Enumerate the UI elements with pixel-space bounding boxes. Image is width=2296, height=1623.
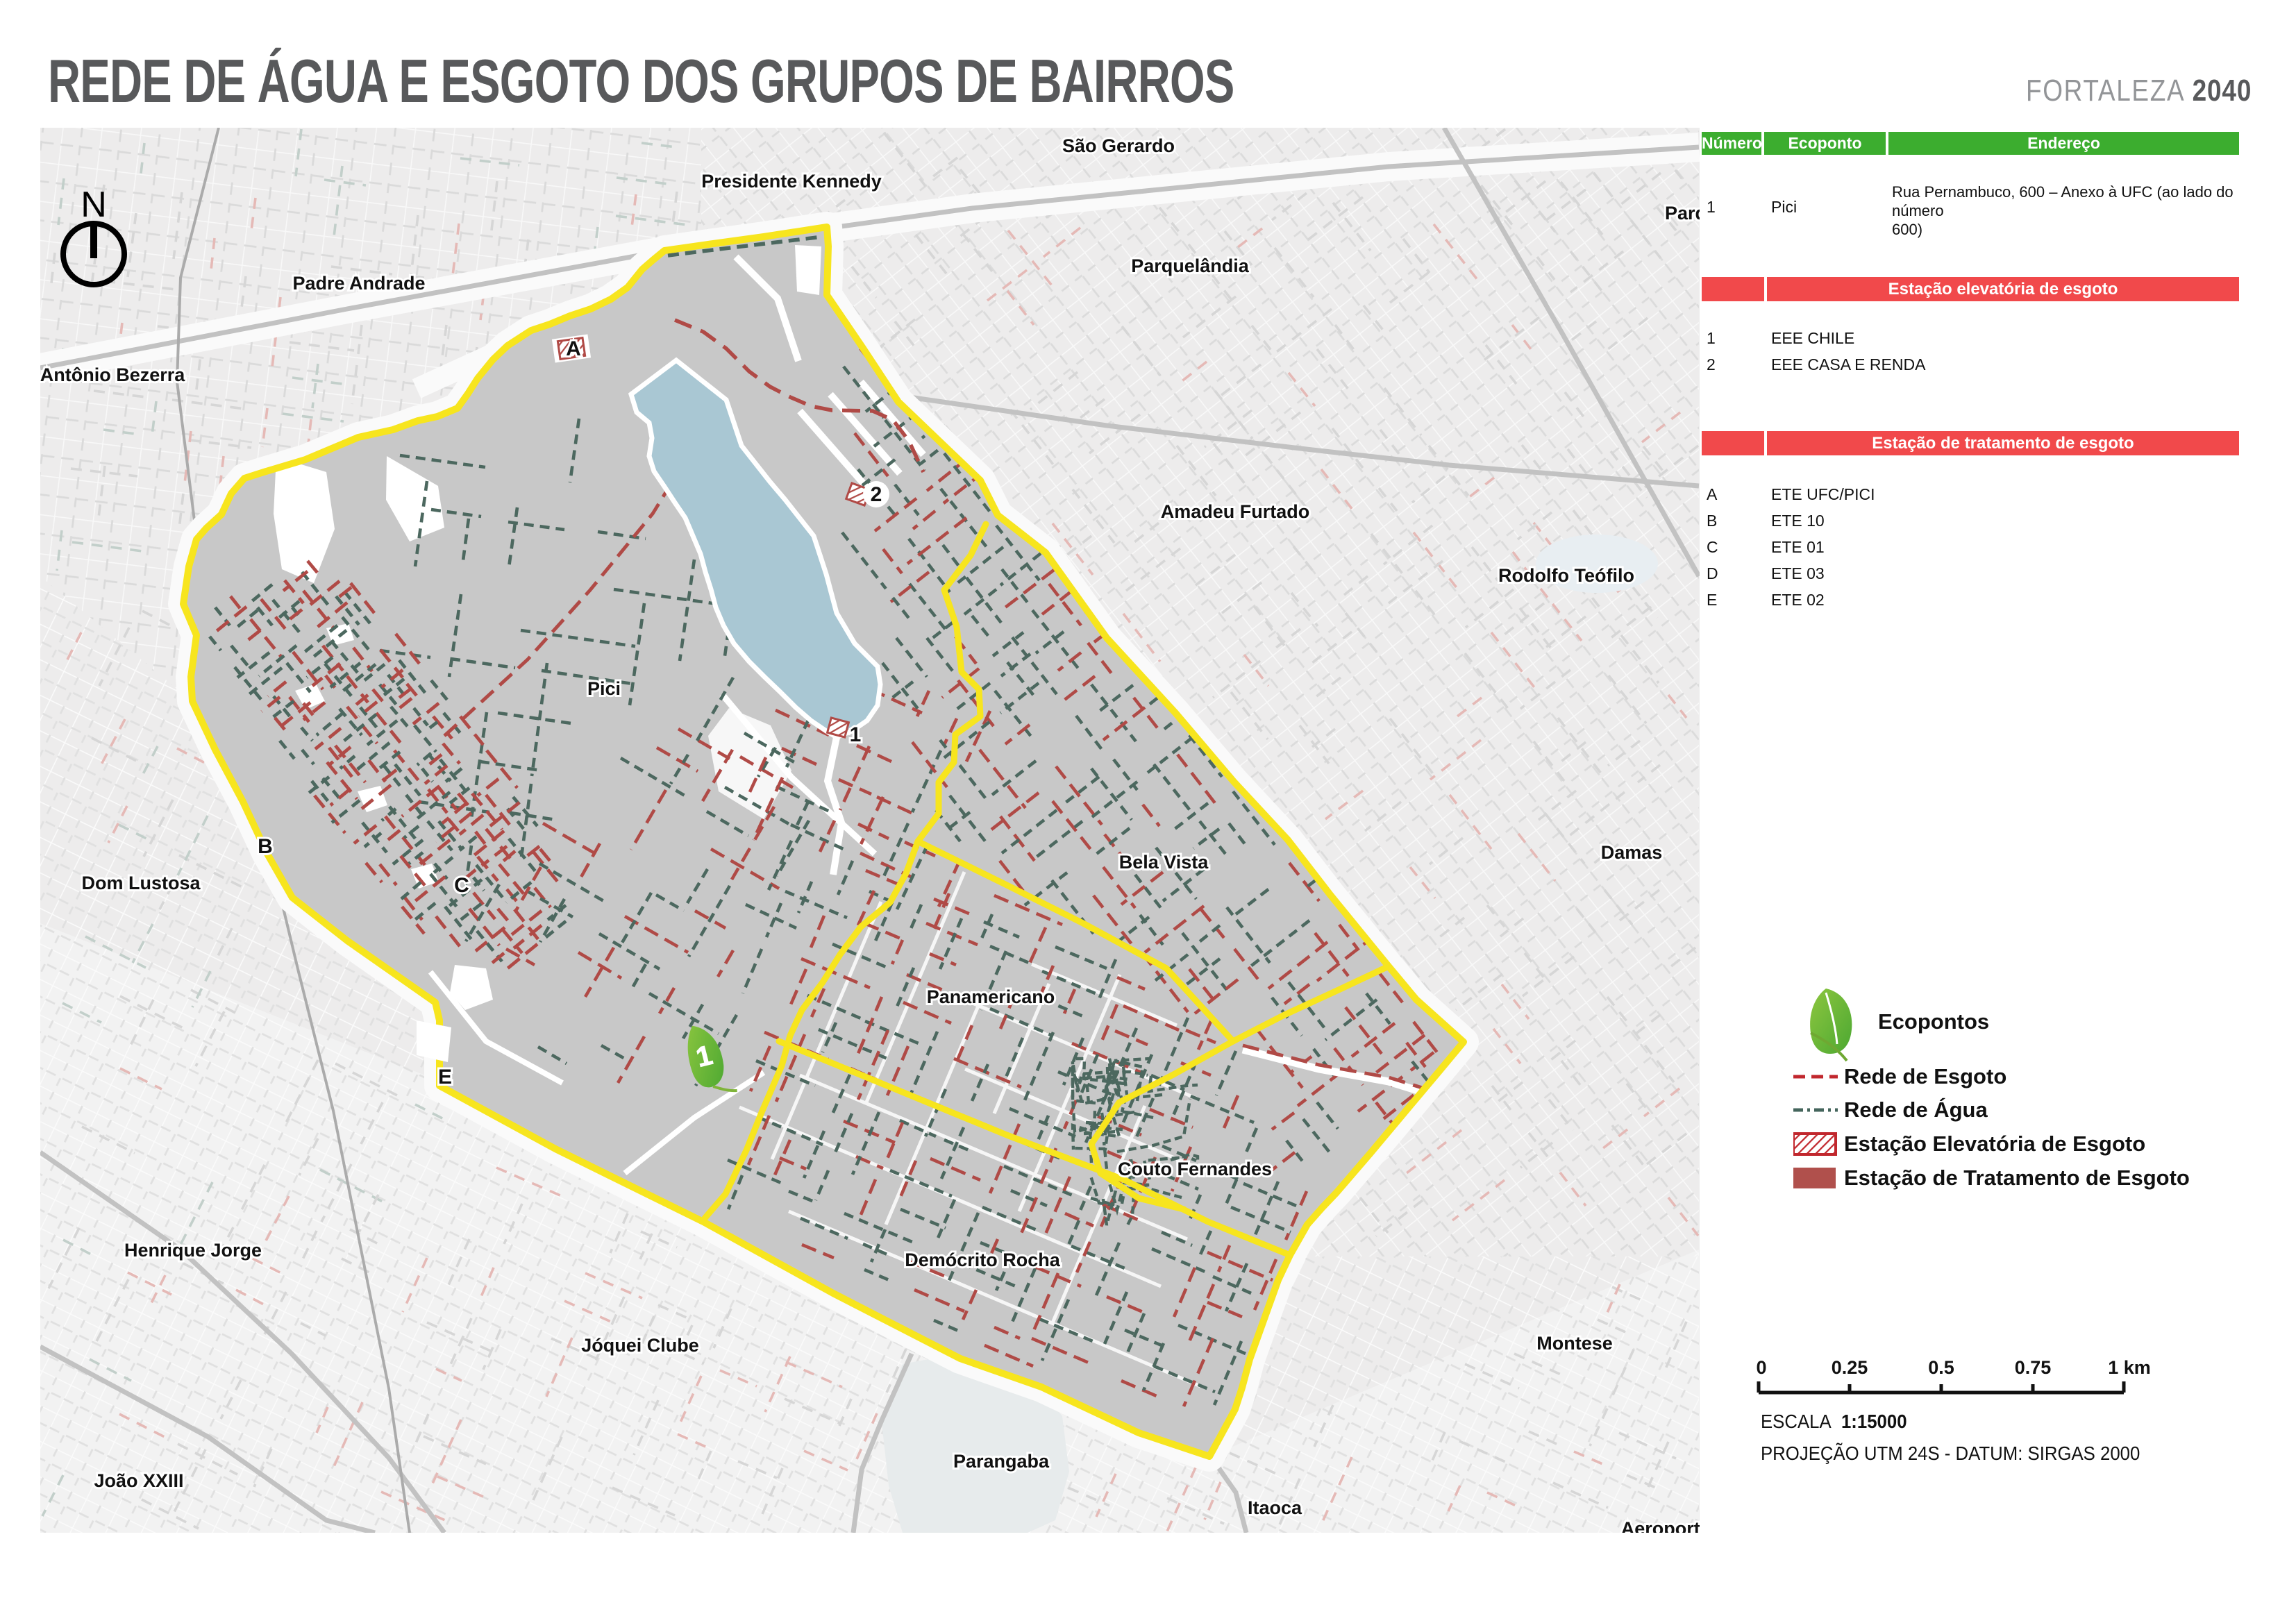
svg-text:Montese: Montese (1536, 1333, 1613, 1354)
svg-text:1 km: 1 km (2108, 1357, 2151, 1378)
svg-text:Dom Lustosa: Dom Lustosa (81, 873, 201, 893)
svg-text:Amadeu Furtado: Amadeu Furtado (1161, 501, 1310, 522)
svg-text:Aeroporto: Aeroporto (1621, 1518, 1700, 1533)
svg-text:João XXIII: João XXIII (94, 1470, 183, 1491)
svg-text:0.25: 0.25 (1832, 1357, 1868, 1378)
svg-text:Pici: Pici (587, 678, 621, 699)
svg-text:Jóquei Clube: Jóquei Clube (581, 1335, 699, 1356)
svg-text:B: B (258, 835, 273, 858)
svg-text:Presidente Kennedy: Presidente Kennedy (701, 171, 882, 192)
svg-text:Couto Fernandes: Couto Fernandes (1118, 1159, 1272, 1179)
svg-text:N: N (81, 185, 107, 225)
svg-text:Damas: Damas (1601, 842, 1663, 863)
svg-text:Parque Ara: Parque Ara (1665, 203, 1700, 224)
svg-text:A: A (566, 337, 581, 360)
svg-text:Bela Vista: Bela Vista (1119, 852, 1209, 873)
svg-text:E: E (438, 1066, 452, 1088)
svg-text:Estação de Tratamento de Esgot: Estação de Tratamento de Esgoto (1844, 1166, 2190, 1190)
svg-text:1: 1 (850, 723, 862, 746)
svg-text:Antônio Bezerra: Antônio Bezerra (40, 364, 185, 385)
svg-text:Henrique Jorge: Henrique Jorge (124, 1240, 262, 1261)
svg-text:Rede de Água: Rede de Água (1844, 1098, 1988, 1122)
svg-text:C: C (454, 874, 469, 897)
svg-text:Demócrito Rocha: Demócrito Rocha (905, 1250, 1061, 1270)
svg-text:Ecopontos: Ecopontos (1878, 1009, 1989, 1034)
svg-text:Rede de Esgoto: Rede de Esgoto (1844, 1064, 2006, 1088)
svg-text:Rodolfo Teófilo: Rodolfo Teófilo (1498, 565, 1634, 586)
svg-text:Padre Andrade: Padre Andrade (292, 273, 425, 294)
svg-text:0.5: 0.5 (1928, 1357, 1954, 1378)
svg-text:Panamericano: Panamericano (927, 986, 1055, 1007)
svg-text:0: 0 (1756, 1357, 1766, 1378)
svg-text:Itaoca: Itaoca (1248, 1497, 1302, 1518)
svg-text:Estação Elevatória de Esgoto: Estação Elevatória de Esgoto (1844, 1132, 2145, 1156)
svg-text:São Gerardo: São Gerardo (1062, 135, 1175, 156)
svg-text:Parangaba: Parangaba (953, 1451, 1050, 1472)
svg-text:2: 2 (871, 483, 882, 506)
svg-text:0.75: 0.75 (2015, 1357, 2052, 1378)
svg-text:Parquelândia: Parquelândia (1131, 255, 1250, 276)
